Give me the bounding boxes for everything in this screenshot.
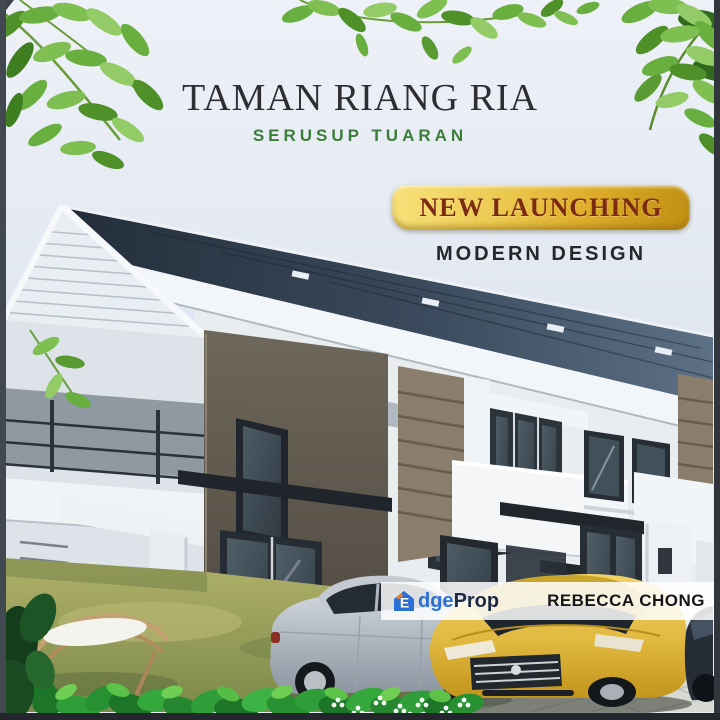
ribbon-label: NEW LAUNCHING	[420, 193, 663, 223]
watermark-bar: E dgeProp REBECCA CHONG	[381, 582, 714, 620]
new-launching-ribbon: NEW LAUNCHING	[392, 185, 690, 230]
poster-title: TAMAN RIANG RIA	[0, 76, 720, 120]
brand-text-dark: Prop	[454, 591, 500, 611]
edgeprop-logo: E dgeProp	[391, 588, 499, 614]
poster-subtitle: SERUSUP TUARAN	[0, 126, 720, 146]
gold-car-emblem	[511, 665, 521, 675]
agent-name: REBECCA CHONG	[547, 591, 705, 611]
property-poster: TAMAN RIANG RIA SERUSUP TUARAN NEW LAUNC…	[0, 0, 720, 720]
gold-car-rim	[600, 684, 624, 700]
wall-lamp	[658, 548, 672, 574]
tagline: MODERN DESIGN	[392, 243, 690, 266]
gold-car-intake	[482, 690, 574, 696]
brand-icon-letter: E	[400, 595, 409, 611]
edgeprop-house-icon: E	[391, 588, 417, 614]
brand-text-blue: dge	[418, 591, 454, 611]
silver-car-taillight	[271, 632, 280, 643]
silver-car-pillar	[376, 584, 378, 612]
frame-bottom	[0, 713, 720, 720]
